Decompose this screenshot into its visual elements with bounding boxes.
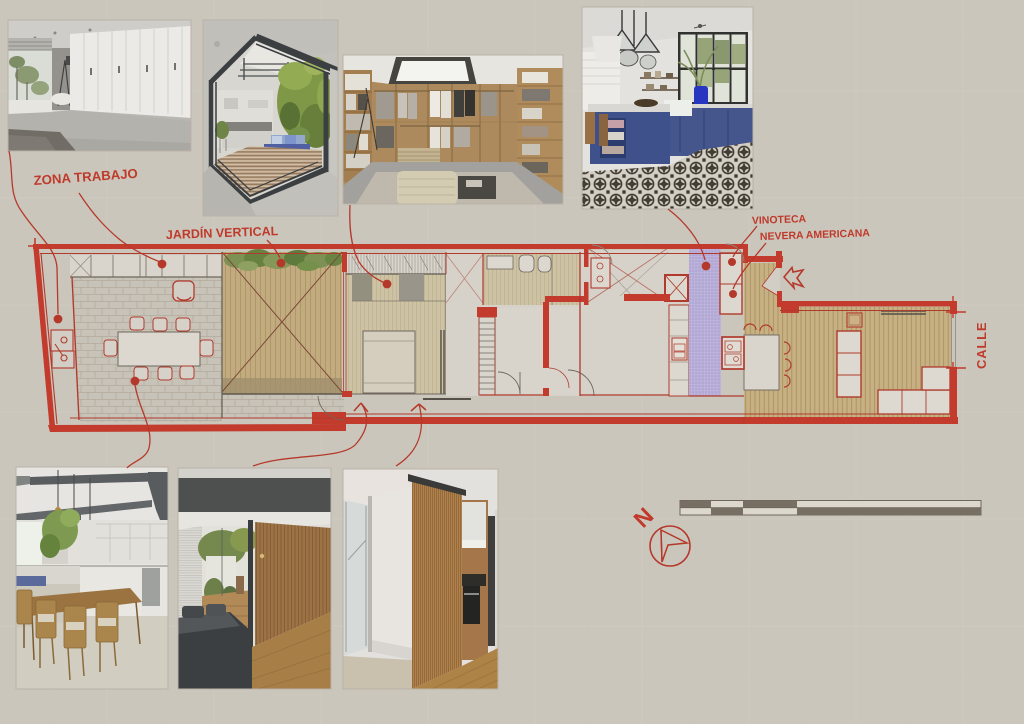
- svg-text:CALLE: CALLE: [974, 322, 989, 369]
- svg-text:VINOTECA: VINOTECA: [752, 213, 807, 227]
